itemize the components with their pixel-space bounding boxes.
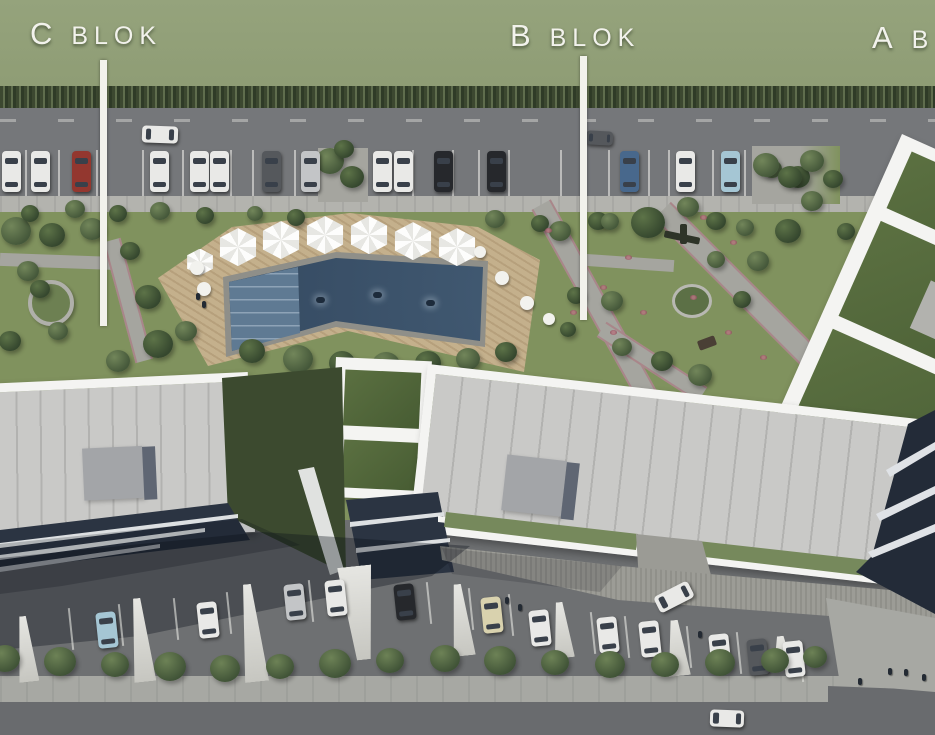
c-blok-rooftop-unit bbox=[82, 446, 144, 501]
c-blok-leader-line bbox=[100, 60, 107, 326]
b-blok-rooftop-unit bbox=[501, 454, 567, 516]
top-road-lane-dashes bbox=[0, 119, 935, 122]
a-blok-roof-pad bbox=[910, 280, 935, 349]
playground-equipment bbox=[680, 224, 687, 244]
west-wing-green-roof bbox=[342, 439, 418, 490]
parking-island bbox=[752, 146, 840, 204]
b-blok-leader-line bbox=[580, 56, 587, 320]
parking-island bbox=[318, 148, 368, 202]
round-planter bbox=[672, 284, 712, 318]
site-plan-render: C BLOK B BLOK A B bbox=[0, 0, 935, 735]
b-blok-label: B BLOK bbox=[510, 18, 640, 54]
rooftop-unit-shadow bbox=[561, 462, 580, 520]
a-blok-label-partial: A B bbox=[872, 20, 934, 56]
rooftop-unit-shadow bbox=[142, 446, 157, 500]
bottom-road bbox=[0, 702, 935, 735]
west-wing-green-roof bbox=[343, 369, 421, 428]
circular-garden-feature bbox=[28, 280, 74, 326]
c-blok-label: C BLOK bbox=[30, 16, 162, 52]
